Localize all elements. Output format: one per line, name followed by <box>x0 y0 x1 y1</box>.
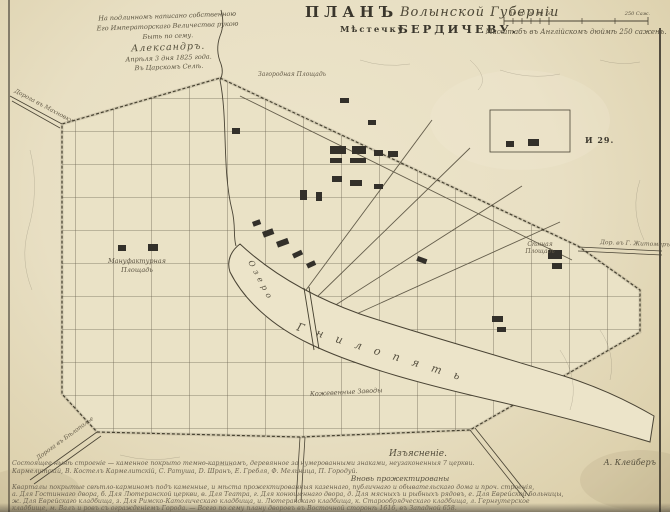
scale-tick-10: 10 <box>510 11 517 17</box>
legend-line-4: а. Для Гостиннаго двора, б. Для Лютеранс… <box>12 491 563 498</box>
scale-tick-50: 50 <box>546 11 553 17</box>
scale-tick-20: 20 <box>518 11 526 17</box>
title-plan-word: ПЛАНЪ <box>305 3 398 21</box>
legend-line-3: Кварталы покрытые свѣтло-карминомъ подъ … <box>11 484 534 491</box>
scale-end-label: 250 Саж. <box>624 11 651 17</box>
scale-tick-40: 40 <box>536 11 544 17</box>
berdychiv-plan-map: На подлинномъ написано собственною Его И… <box>0 0 670 512</box>
legend-signature: А. Клейберъ <box>603 458 656 467</box>
legend-line-6: кладбище, м. Валъ и ровъ съ огражденіемъ… <box>12 505 457 512</box>
title-town-prefix: Мѣстечку <box>340 25 405 35</box>
legend-subheading: Вновь прожектированы <box>350 474 450 483</box>
top-square-label: Загородная Площадь <box>258 71 326 78</box>
imprimatur-line-3: Быть по сему. <box>141 31 193 41</box>
imprimatur-place: Въ Царскомъ Селѣ. <box>133 62 203 72</box>
legend-heading: Изъясненіе. <box>388 449 447 459</box>
legend-line-2: Кармелитскій, B. Костелъ Кармелитскій, C… <box>11 468 358 475</box>
legend-block: Изъясненіе. Состоящее нынѣ строеніе — ка… <box>11 449 656 512</box>
hay-square-label-1: Сѣнная <box>527 241 552 248</box>
hay-square-label-2: Площадь <box>524 248 554 255</box>
manufactory-square-label-2: Площадь <box>120 266 153 274</box>
map-sheet: На подлинномъ написано собственною Его И… <box>0 0 670 512</box>
title-province: Волынской Губерніи <box>399 5 559 20</box>
legend-line-5: ж. Для Еврейскаго кладбища, з. Для Римск… <box>12 498 530 505</box>
plot-number-label: И 29. <box>585 135 614 145</box>
road-zhytomyr-label: Дор. въ Г. Житомиръ <box>599 239 670 248</box>
scale-caption: Масштабъ въ Англійскомъ дюймѣ 250 саженъ… <box>484 28 666 36</box>
manufactory-square-label-1: Мануфактурная <box>107 257 166 265</box>
legend-line-1: Состоящее нынѣ строеніе — каменное покры… <box>12 460 475 467</box>
scale-tick-30: 30 <box>528 11 535 17</box>
